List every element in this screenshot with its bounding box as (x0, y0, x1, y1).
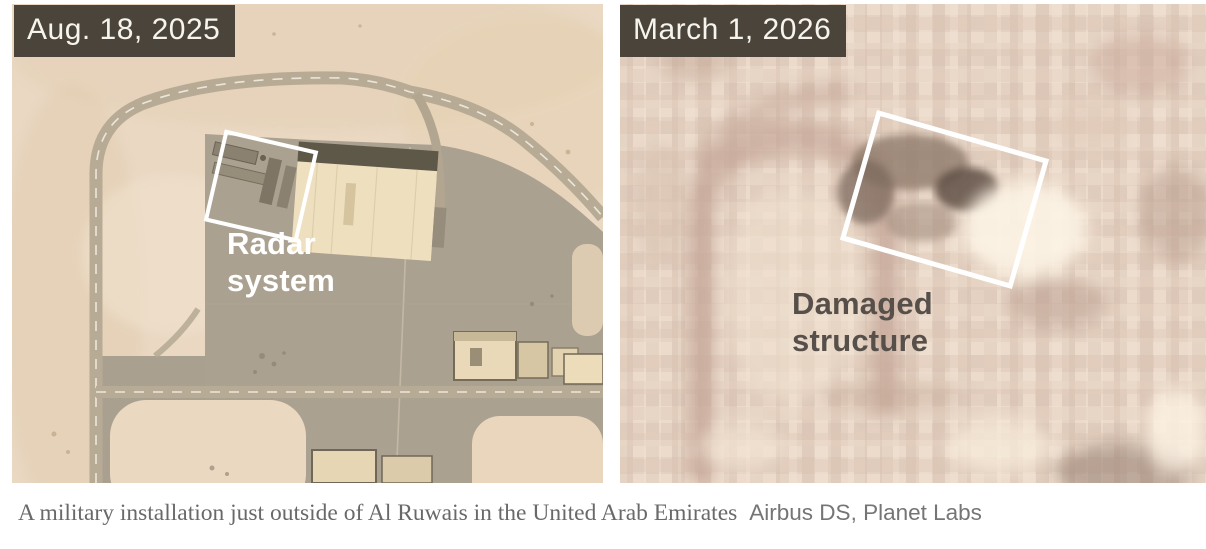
satellite-panel-before: Radar system Aug. 18, 2025 (12, 4, 603, 483)
satellite-comparison-figure: Radar system Aug. 18, 2025 (0, 0, 1206, 549)
date-chip-before: Aug. 18, 2025 (14, 5, 235, 57)
figure-caption: A military installation just outside of … (18, 500, 1198, 527)
annotation-label-radar: Radar system (227, 226, 335, 299)
satellite-panels: Radar system Aug. 18, 2025 (12, 4, 1206, 483)
date-chip-after: March 1, 2026 (620, 5, 846, 57)
caption-credit: Airbus DS, Planet Labs (749, 500, 982, 525)
satellite-panel-after: Damaged structure March 1, 2026 (620, 4, 1206, 483)
caption-text: A military installation just outside of … (18, 500, 737, 526)
annotation-label-damaged: Damaged structure (792, 286, 933, 359)
